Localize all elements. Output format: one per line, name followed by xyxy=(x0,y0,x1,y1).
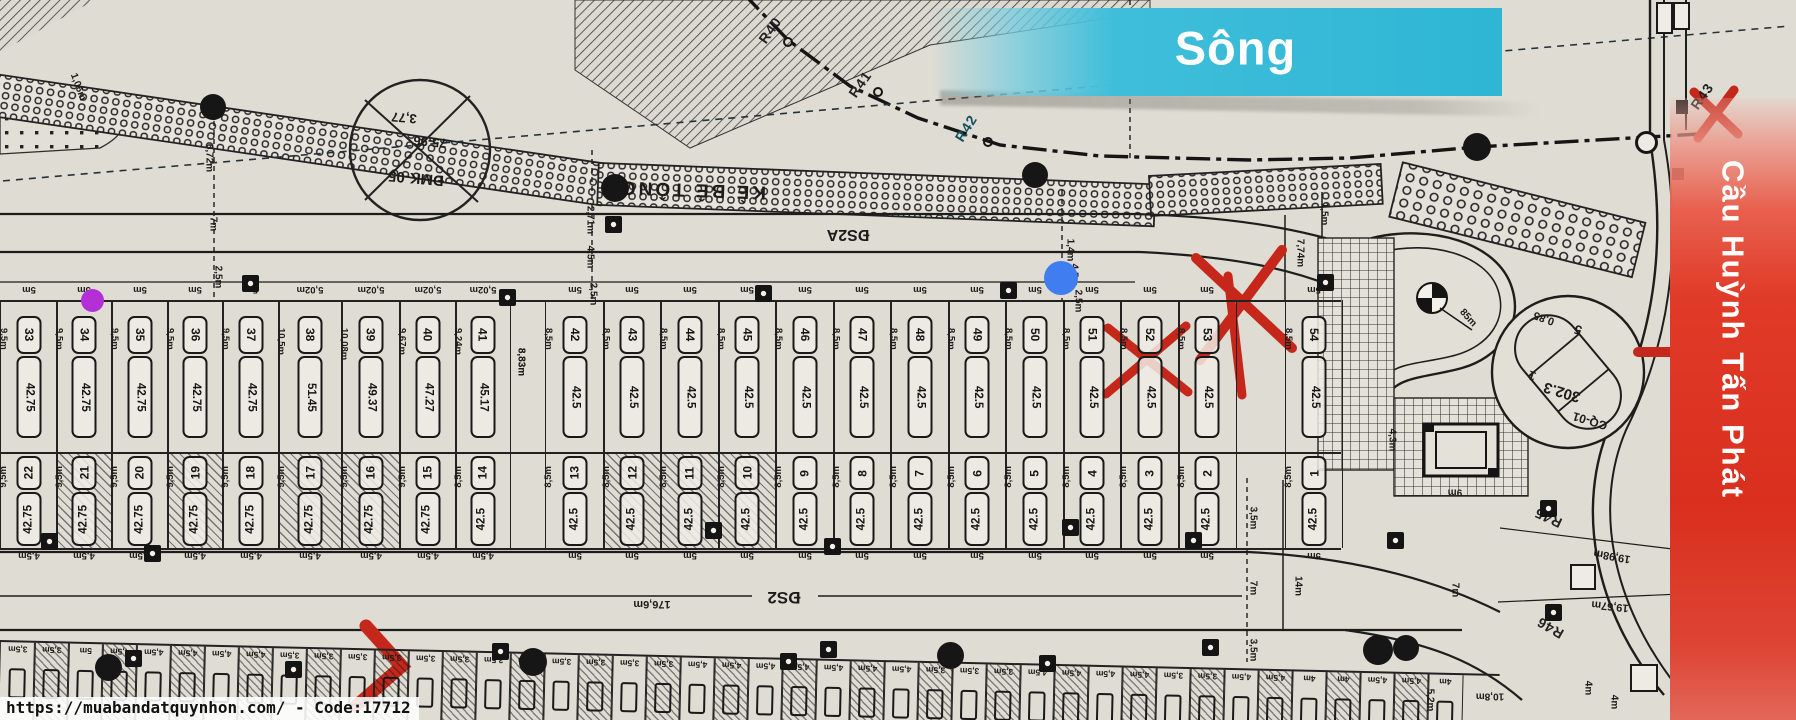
small-plot-width: 3,5m xyxy=(382,653,402,663)
small-plot-box xyxy=(416,677,434,707)
plot-front-width: 5,02m xyxy=(469,284,496,295)
plot-area: 42.75 xyxy=(134,383,146,412)
plot-area: 42.5 xyxy=(569,508,581,530)
plot-number-box: 12 xyxy=(620,456,645,490)
plot-front-width: 4,5m xyxy=(240,550,262,561)
small-plot: 4,5m xyxy=(678,657,716,720)
dim-label: 4,3m xyxy=(1387,429,1398,452)
plot-front-width: 5m xyxy=(568,284,582,295)
plot-number: 41 xyxy=(477,328,489,341)
plot-number: 1 xyxy=(1308,470,1320,477)
small-plot: 3,5m xyxy=(984,664,1022,720)
small-plot-width: 4,5m xyxy=(246,650,266,660)
plot-area: 42.75 xyxy=(23,505,35,534)
plot-number-box: 7 xyxy=(907,456,932,490)
small-plot: 4,5m xyxy=(814,661,852,720)
plot-number-box: 52 xyxy=(1137,316,1162,354)
small-plot-width: 4,5m xyxy=(1402,676,1422,686)
small-plot: 4m xyxy=(1289,671,1327,720)
plot-area-box: 42.5 xyxy=(677,492,702,546)
plot-area: 42.75 xyxy=(190,383,202,412)
small-plot: 3,5m xyxy=(440,652,478,720)
plot-area-box: 42.5 xyxy=(1302,356,1327,438)
dim-label: 7m xyxy=(208,217,219,231)
plot-area: 42.75 xyxy=(79,383,91,412)
small-plot: 3,5m xyxy=(916,663,954,720)
plot-40: 5,02m4047.279,67m xyxy=(399,300,457,452)
plot-18: 4,5m1842.759,5m xyxy=(222,452,280,548)
dim-label: 7m xyxy=(1248,581,1259,595)
bridge-mark xyxy=(1673,2,1690,30)
small-plot-width: 4,5m xyxy=(144,647,164,657)
survey-square-marker xyxy=(1039,655,1056,672)
dim-label: 2,5m xyxy=(1073,290,1084,313)
small-plot-box xyxy=(756,685,774,715)
plot-number: 3 xyxy=(1144,470,1156,477)
dim-label: 2,5m xyxy=(213,266,224,289)
survey-square-marker xyxy=(1185,532,1202,549)
plot-area-box: 42.75 xyxy=(183,492,208,546)
plot-side-width: 9,5m xyxy=(54,466,65,488)
plot-side-width: 8,5m xyxy=(1061,328,1072,350)
survey-square-marker xyxy=(499,289,516,306)
small-plot: 4,5m xyxy=(1120,667,1158,720)
small-plot-width: 4,5m xyxy=(892,664,912,674)
watermark-url: https://muabandatquynhon.com/ - Code:177… xyxy=(0,697,419,720)
plot-51: 5m5142.58,5m xyxy=(1063,300,1123,452)
plot-front-width: 5m xyxy=(568,550,582,561)
plot-front-width: 5m xyxy=(740,284,754,295)
small-plot-width: 3,5m xyxy=(1164,670,1184,680)
plot-number: 38 xyxy=(304,328,316,341)
small-plot: 3,5m xyxy=(474,653,512,720)
plot-side-width: 8,5m xyxy=(1283,466,1294,488)
small-plot-box xyxy=(8,668,26,698)
small-plot-box xyxy=(1266,697,1284,720)
black-survey-dot xyxy=(937,642,964,669)
plot-front-width: 4,5m xyxy=(360,550,382,561)
plot-front-width: 5m xyxy=(1143,284,1157,295)
plot-number: 39 xyxy=(365,328,377,341)
plot-front-width: 5m xyxy=(133,284,147,295)
plot-number-box: 43 xyxy=(620,316,645,354)
plot-area: 42.5 xyxy=(1202,386,1214,408)
plot-number: 5 xyxy=(1029,470,1041,477)
small-plot: 4,5m xyxy=(1357,673,1395,720)
plot-front-width: 5m xyxy=(913,284,927,295)
plot-number: 48 xyxy=(914,328,926,341)
plot-side-width: 9,5m xyxy=(220,328,231,350)
small-plot-width: 4,5m xyxy=(1096,669,1116,679)
plot-front-width: 5m xyxy=(855,550,869,561)
plot-side-width: 8,5m xyxy=(773,466,784,488)
plot-area-box: 42.75 xyxy=(72,356,97,438)
plot-number-box: 36 xyxy=(183,316,208,354)
plot-number-box: 9 xyxy=(792,456,817,490)
plot-area-box: 42.75 xyxy=(358,492,383,546)
small-plot: 4,5m xyxy=(1221,670,1259,720)
small-plot-box xyxy=(1028,691,1046,720)
plot-area: 42.75 xyxy=(365,505,377,534)
small-plot-box xyxy=(42,669,60,699)
plot-number: 40 xyxy=(422,328,434,341)
plot-area: 49.37 xyxy=(365,383,377,412)
plot-side-width: 9,5m xyxy=(165,466,176,488)
plot-area-box: 42.5 xyxy=(850,492,875,546)
plot-area: 42.5 xyxy=(1308,386,1320,408)
plot-front-width: 5m xyxy=(1307,550,1321,561)
plot-area: 42.5 xyxy=(799,508,811,530)
small-plot-box xyxy=(824,687,842,717)
plot-area-box: 45.17 xyxy=(470,356,495,438)
small-plot-box xyxy=(926,689,944,719)
plot-side-width: 8,5m xyxy=(716,328,727,350)
small-plot-width: 3,5m xyxy=(450,654,470,664)
survey-square-marker xyxy=(755,285,772,302)
plot-number-box: 45 xyxy=(735,316,760,354)
plot-number: 43 xyxy=(626,328,638,341)
dim-label: 5,2m xyxy=(1425,689,1436,712)
plot-area-box: 42.75 xyxy=(127,492,152,546)
small-plot-box xyxy=(688,684,706,714)
plot-6: 5m642.58,5m xyxy=(948,452,1008,548)
plot-number: 42 xyxy=(569,328,581,341)
plot-number-box: 51 xyxy=(1080,316,1105,354)
plot-number: 22 xyxy=(23,466,35,479)
dim-label: 1,4m xyxy=(1065,239,1076,262)
plot-50: 5m5042.58,5m xyxy=(1005,300,1065,452)
small-plot-width: 3,5m xyxy=(654,659,674,669)
plot-number: 2 xyxy=(1201,470,1213,477)
plot-front-width: 5m xyxy=(188,284,202,295)
plot-area-box: 42.75 xyxy=(238,356,263,438)
small-plot: 4,5m xyxy=(1086,667,1124,720)
plot-number-box: 49 xyxy=(965,316,990,354)
roundabout-plot xyxy=(1492,296,1644,448)
plot-17: 4,5m1742.759,5m xyxy=(278,452,343,548)
plot-front-width: 5m xyxy=(22,284,36,295)
small-plot: 4m xyxy=(1323,672,1361,720)
plot-number-box: 46 xyxy=(792,316,817,354)
plot-number-box: 5 xyxy=(1022,456,1047,490)
small-plot-box xyxy=(790,686,808,716)
plot-9: 5m942.58,5m xyxy=(775,452,835,548)
small-plot-box xyxy=(722,684,740,714)
survey-square-marker xyxy=(1317,274,1334,291)
plot-front-width: 4,5m xyxy=(18,550,40,561)
plot-area-box: 42.5 xyxy=(792,356,817,438)
plot-number: 35 xyxy=(134,328,146,341)
small-plot-box xyxy=(1232,696,1250,720)
small-plot: 3,5m xyxy=(610,656,648,720)
plot-number-box: 18 xyxy=(238,456,263,490)
plot-number-box: 47 xyxy=(850,316,875,354)
plot-side-width: 8,5m xyxy=(658,466,669,488)
small-plot-box xyxy=(1164,694,1182,720)
plot-area-box: 42.75 xyxy=(298,492,323,546)
plot-side-width: 8,5m xyxy=(888,466,899,488)
small-plot-width: 4m xyxy=(1337,674,1350,684)
survey-square-marker xyxy=(41,533,58,550)
small-plot-box xyxy=(484,679,502,709)
plot-area-box: 42.5 xyxy=(470,492,495,546)
plot-area: 42.5 xyxy=(857,386,869,408)
plot-side-width: 8,5m xyxy=(1118,466,1129,488)
small-plot-width: 4,5m xyxy=(178,648,198,658)
plot-front-width: 4,5m xyxy=(184,550,206,561)
black-survey-dot xyxy=(95,654,122,681)
small-plot-width: 4,5m xyxy=(858,663,878,673)
plot-number-box: 40 xyxy=(415,316,440,354)
plot-number-box: 4 xyxy=(1080,456,1105,490)
plot-side-width: 8,5m xyxy=(658,328,669,350)
survey-square-marker xyxy=(1202,639,1219,656)
plot-number-box: 22 xyxy=(16,456,41,490)
plot-35: 5m3542.759,5m xyxy=(111,300,169,452)
plot-side-width: 8,5m xyxy=(946,328,957,350)
plot-side-width: 9,5m xyxy=(339,466,350,488)
plot-number-box: 17 xyxy=(298,456,323,490)
plot-area-box: 42.5 xyxy=(620,356,645,438)
survey-square-marker xyxy=(705,522,722,539)
plot-area: 42.75 xyxy=(23,383,35,412)
survey-square-marker xyxy=(242,275,259,292)
bridge-mark xyxy=(1656,2,1673,34)
plot-number-box: 35 xyxy=(127,316,152,354)
plot-front-width: 5m xyxy=(1085,550,1099,561)
dim-label: 2,5m xyxy=(588,283,599,306)
small-plot-width: 4,5m xyxy=(1130,670,1150,680)
small-plot: 3,5m xyxy=(576,655,614,720)
plot-side-width: 8,5m xyxy=(831,466,842,488)
dim-label: 9m xyxy=(1448,487,1462,498)
survey-square-marker xyxy=(492,643,509,660)
plot-number: 20 xyxy=(134,466,146,479)
small-plot-width: 4,5m xyxy=(722,660,742,670)
plot-area: 42.5 xyxy=(627,508,639,530)
plot-side-width: 9,5m xyxy=(109,466,120,488)
survey-square-marker xyxy=(1540,500,1557,517)
dim-label: 3,5m xyxy=(1248,507,1259,530)
plot-area-box: 42.5 xyxy=(562,492,587,546)
small-plot-width: 4,5m xyxy=(212,649,232,659)
plot-front-width: 5m xyxy=(1028,550,1042,561)
plot-number-box: 33 xyxy=(16,316,41,354)
plot-side-width: 8,5m xyxy=(1176,466,1187,488)
plot-37: 5m3742.759,5m xyxy=(222,300,280,452)
plot-side-width: 8,5m xyxy=(773,328,784,350)
plot-area-box: 42.5 xyxy=(677,356,702,438)
monument-structure xyxy=(1424,424,1498,476)
plot-area-box: 42.5 xyxy=(965,356,990,438)
small-plot-width: 4,5m xyxy=(1266,673,1286,683)
plot-area: 42.75 xyxy=(422,505,434,534)
black-survey-dot xyxy=(1022,162,1048,188)
plot-area: 42.5 xyxy=(972,508,984,530)
plot-number: 54 xyxy=(1308,328,1320,341)
plot-52: 5m5242.58,5m xyxy=(1120,300,1180,452)
survey-square-marker xyxy=(780,653,797,670)
small-plot-box xyxy=(620,682,638,712)
small-plot-width: 3,5m xyxy=(416,653,436,663)
survey-square-marker xyxy=(285,661,302,678)
plot-36: 5m3642.759,5m xyxy=(167,300,225,452)
plot-front-width: 5m xyxy=(798,550,812,561)
plot-side-width: 9,5m xyxy=(276,466,287,488)
plot-15: 4,5m1542.759,5m xyxy=(399,452,457,548)
plot-54: 5m5442.58,5m xyxy=(1285,300,1343,452)
black-survey-dot xyxy=(601,174,629,202)
small-plot-width: 3,5m xyxy=(314,651,334,661)
plot-41: 5,02m4145.179,24m xyxy=(455,300,511,452)
stamp-line-1: 3,77 xyxy=(391,109,418,126)
plot-45: 5m4542.58,5m xyxy=(718,300,778,452)
plot-44: 5m4442.58,5m xyxy=(660,300,720,452)
plot-16: 4,5m1642.759,5m xyxy=(341,452,401,548)
dim-label: 4m xyxy=(1609,695,1620,709)
plot-side-width: 8,5m xyxy=(601,328,612,350)
small-plot: 4,5m xyxy=(882,662,920,720)
small-plot-box xyxy=(1062,692,1080,720)
small-plot-box xyxy=(858,687,876,717)
plot-front-width: 5m xyxy=(1028,284,1042,295)
small-plot-width: 3,5m xyxy=(280,650,300,660)
plot-number-box: 53 xyxy=(1195,316,1220,354)
plot-area: 42.75 xyxy=(245,505,257,534)
small-plot: 3,5m xyxy=(950,664,988,720)
plot-number-box: 8 xyxy=(850,456,875,490)
small-plot: 3,5m xyxy=(542,654,580,720)
small-plot-width: 3,5m xyxy=(1198,671,1218,681)
plot-front-width: 5,02m xyxy=(357,284,384,295)
survey-square-marker xyxy=(1387,532,1404,549)
plot-front-width: 5m xyxy=(1143,550,1157,561)
road-label-ds2: ĐS2 xyxy=(767,587,800,607)
plot-area-box: 42.5 xyxy=(1080,492,1105,546)
plot-front-width: 5m xyxy=(970,550,984,561)
plot-front-width: 5m xyxy=(683,284,697,295)
plot-number: 19 xyxy=(189,466,201,479)
plot-1: 5m142.58,5m xyxy=(1285,452,1343,548)
plot-side-width: 8,5m xyxy=(1118,328,1129,350)
small-plot: 4,5m xyxy=(712,658,750,720)
land-plot-map: Sông Cầu Huỳnh Tấn Phát ĐS2A ĐS2 KÈ BÊ T… xyxy=(0,0,1796,720)
plot-38: 5,02m3851.4510,5m xyxy=(278,300,343,452)
small-plot-width: 4,5m xyxy=(1062,668,1082,678)
small-plot-box xyxy=(1368,699,1386,720)
plot-area-box: 42.5 xyxy=(1195,356,1220,438)
survey-square-marker xyxy=(605,216,622,233)
plot-side-width: 8,5m xyxy=(543,328,554,350)
plot-48: 5m4842.58,5m xyxy=(890,300,950,452)
survey-square-marker xyxy=(820,641,837,658)
plot-number: 49 xyxy=(971,328,983,341)
plot-number-box: 44 xyxy=(677,316,702,354)
black-survey-dot xyxy=(1393,635,1419,661)
plot-area: 42.5 xyxy=(742,508,754,530)
small-plot-box xyxy=(450,678,468,708)
plot-side-width: 9,67m xyxy=(397,328,408,355)
plot-front-width: 5m xyxy=(625,550,639,561)
small-plot-box xyxy=(654,683,672,713)
survey-square-marker xyxy=(1000,282,1017,299)
plot-number-box: 20 xyxy=(127,456,152,490)
plot-14: 4,5m1442.58,5m xyxy=(455,452,511,548)
plot-number: 10 xyxy=(741,466,753,479)
blue-dot-annotation xyxy=(1044,261,1078,295)
plot-area-box: 42.5 xyxy=(1080,356,1105,438)
black-survey-dot xyxy=(1463,133,1491,161)
plot-area-box: 42.75 xyxy=(238,492,263,546)
plot-number: 18 xyxy=(245,466,257,479)
small-plot: 4,5m xyxy=(1255,671,1293,720)
plot-number-box: 21 xyxy=(72,456,97,490)
plot-side-width: 8,5m xyxy=(716,466,727,488)
purple-dot-annotation xyxy=(81,289,104,312)
plot-number-box: 13 xyxy=(562,456,587,490)
plot-number-box: 1 xyxy=(1302,456,1327,490)
small-plot-box xyxy=(1334,698,1352,720)
plot-5: 5m542.58,5m xyxy=(1005,452,1065,548)
small-plot-box xyxy=(1096,693,1114,720)
road-label-ds2a: ĐS2A xyxy=(827,225,870,243)
small-plot-box xyxy=(1436,701,1454,720)
small-plot: 3,5m xyxy=(644,657,682,720)
plot-area: 47.27 xyxy=(422,383,434,412)
dim-label: 176,6m xyxy=(633,598,670,610)
plot-number-box: 11 xyxy=(677,456,702,490)
plot-area-box: 42.5 xyxy=(1137,356,1162,438)
plot-number-box: 42 xyxy=(562,316,587,354)
plot-34: 5m3442.759,5m xyxy=(56,300,114,452)
plot-front-width: 5,02m xyxy=(414,284,441,295)
plot-number: 8 xyxy=(856,470,868,477)
small-plot-width: 5m xyxy=(80,646,93,656)
plot-area-box: 42.75 xyxy=(72,492,97,546)
small-plot: 4,5m xyxy=(1052,666,1090,720)
plot-front-width: 5m xyxy=(683,550,697,561)
plot-13: 5m1342.58,5m xyxy=(545,452,605,548)
plot-side-width: 8,5m xyxy=(453,466,464,488)
plot-front-width: 4,5m xyxy=(299,550,321,561)
small-plot: 4,5m xyxy=(746,659,784,720)
plot-number: 7 xyxy=(914,470,926,477)
small-plot-box xyxy=(552,681,570,711)
plot-number: 46 xyxy=(799,328,811,341)
plot-side-width: 9,5m xyxy=(109,328,120,350)
plot-number-box: 39 xyxy=(358,316,383,354)
plot-area-box: 42.5 xyxy=(907,356,932,438)
dim-label: 7,74m xyxy=(1295,239,1306,267)
plot-number-box: 34 xyxy=(72,316,97,354)
survey-square-marker xyxy=(1062,519,1079,536)
plot-side-width: 9,5m xyxy=(0,328,9,350)
plot-area: 42.5 xyxy=(1087,386,1099,408)
small-plot-width: 3,5m xyxy=(42,645,62,655)
plot-area-box: 42.5 xyxy=(1022,356,1047,438)
plot-47: 5m4742.58,5m xyxy=(833,300,893,452)
plot-area: 42.75 xyxy=(245,383,257,412)
plot-area-box: 42.75 xyxy=(16,356,41,438)
plot-number-box: 2 xyxy=(1195,456,1220,490)
small-plot-width: 3,5m xyxy=(960,666,980,676)
plot-20: 4,5m2042.759,5m xyxy=(111,452,169,548)
plot-front-width: 5m xyxy=(1085,284,1099,295)
plot-front-width: 5m xyxy=(913,550,927,561)
dim-label: 7m xyxy=(1450,583,1461,597)
plot-area: 42.75 xyxy=(79,505,91,534)
culvert-square xyxy=(1570,564,1596,590)
